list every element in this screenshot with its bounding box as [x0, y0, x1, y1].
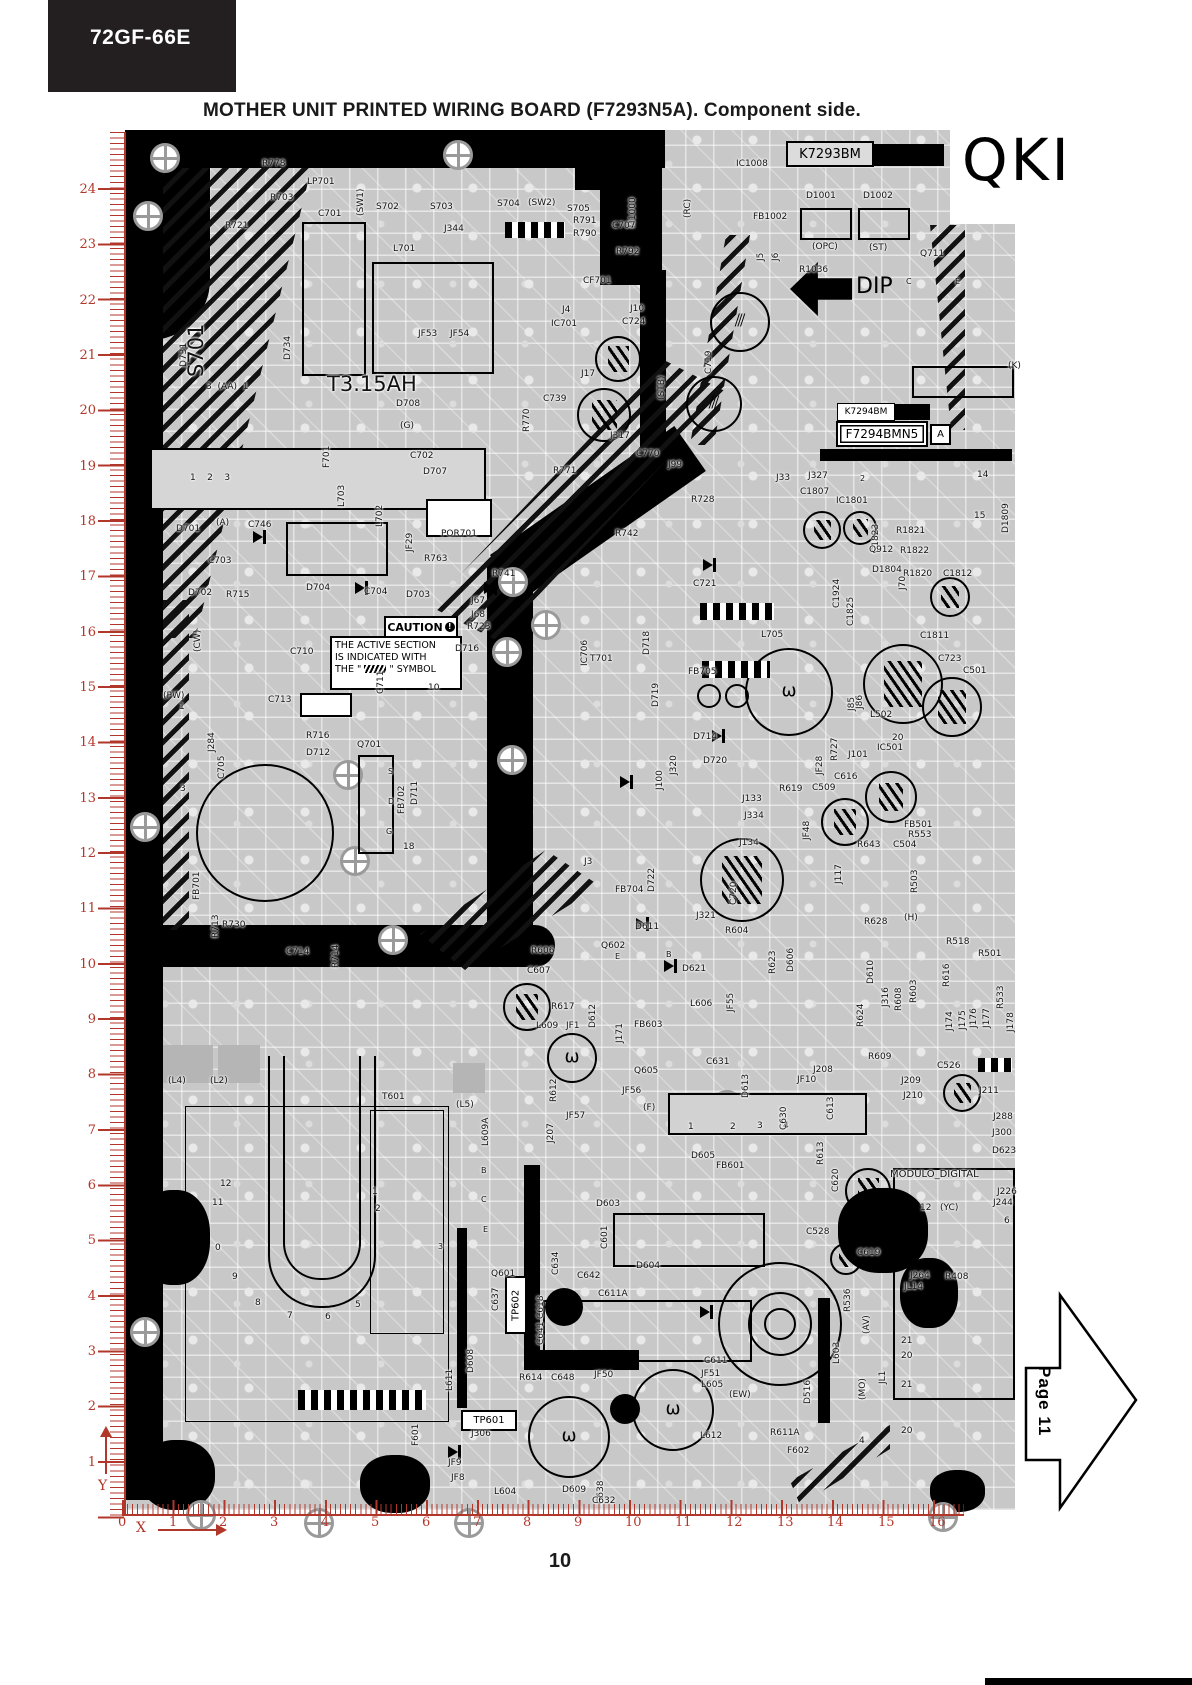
component-label: 2 — [730, 1123, 736, 1132]
component-label: R619 — [779, 785, 802, 794]
component-label: (H) — [904, 914, 918, 923]
component-label: 8 — [255, 1299, 261, 1308]
component-label: R713 — [212, 915, 221, 938]
component-label: FB704 — [615, 886, 644, 895]
component-label: 20 — [901, 1352, 912, 1361]
component-label: S703 — [430, 203, 453, 212]
component-label: J334 — [744, 812, 764, 821]
caution-title: CAUTION — [387, 621, 442, 634]
component-label: D702 — [188, 589, 212, 598]
component-label: R723 — [467, 623, 490, 632]
component-label: FB701 — [193, 871, 202, 900]
ruler-number: 16 — [76, 626, 96, 639]
component-label: FB702 — [398, 785, 407, 814]
capacitor-symbol — [865, 771, 917, 823]
component-label: IC1801 — [836, 497, 868, 506]
ruler-number: 15 — [878, 1516, 895, 1529]
component-label: D704 — [306, 584, 330, 593]
pad-symbol — [697, 684, 721, 708]
black-trace — [892, 404, 930, 420]
component-label: JF55 — [727, 993, 736, 1012]
component-label: S702 — [376, 203, 399, 212]
component-label: JF50 — [594, 1371, 613, 1380]
mounting-hole — [133, 201, 163, 231]
component-label: 14 — [977, 471, 988, 480]
component-label: J226 — [997, 1188, 1017, 1197]
component-label: 3 — [757, 1122, 763, 1131]
smd-pads — [700, 603, 774, 620]
component-label: D722 — [648, 868, 657, 892]
component-label: J10 — [630, 305, 644, 314]
component-label: C601 — [601, 1226, 610, 1249]
component-label: R703 — [270, 194, 293, 203]
diode-symbol — [700, 1306, 710, 1318]
component-label: F602 — [787, 1447, 809, 1456]
component-label: S705 — [567, 205, 590, 214]
component-label: L609 — [536, 1022, 558, 1031]
component-label: 20 — [901, 1427, 912, 1436]
component-label: (CW) — [194, 630, 203, 652]
component-label: J306 — [471, 1430, 491, 1439]
component-label: C641 — [537, 1322, 546, 1345]
component-label: C642 — [577, 1272, 600, 1281]
component-label: 1 — [179, 703, 185, 712]
component-label: 6 — [1004, 1217, 1010, 1226]
ruler-number: 11 — [675, 1516, 692, 1529]
ruler-number: 15 — [76, 681, 96, 694]
component-label: D708 — [396, 400, 420, 409]
component-label: L703 — [338, 485, 347, 507]
component-label: D609 — [562, 1486, 586, 1495]
page-number: 10 — [530, 1550, 590, 1573]
diode-symbol — [664, 960, 674, 972]
ruler-number: 6 — [76, 1179, 96, 1192]
component-label: (F) — [643, 1104, 655, 1113]
component-label: JF8 — [451, 1474, 465, 1483]
ruler-number: 5 — [371, 1516, 379, 1529]
ruler-number: 12 — [76, 847, 96, 860]
component-label: J5 — [757, 253, 766, 261]
component-label: L611 — [446, 1369, 455, 1391]
component-label: D621 — [682, 965, 706, 974]
ruler-number: 9 — [76, 1013, 96, 1026]
component-label: C509 — [812, 784, 835, 793]
capacitor-symbol — [700, 838, 784, 922]
component-label: Q912 — [869, 546, 893, 555]
component-label: D1804 — [872, 566, 902, 575]
exclamation-icon: ! — [445, 622, 455, 632]
component-label: Q605 — [634, 1067, 658, 1076]
capacitor-symbol — [943, 1074, 981, 1112]
board-code-box: K7293BM — [786, 141, 874, 167]
component-label: C616 — [834, 773, 857, 782]
component-label: (L2) — [210, 1077, 228, 1086]
component-label: D719 — [652, 683, 661, 707]
board-code: K7293BM — [799, 147, 861, 162]
component-label: R714 — [332, 945, 341, 968]
component-label: C1924 — [833, 579, 842, 608]
diode-symbol — [484, 582, 494, 594]
mounting-hole — [130, 812, 160, 842]
component-outline — [196, 764, 334, 902]
component-label: R611A — [770, 1429, 800, 1438]
component-label: J210 — [903, 1092, 923, 1101]
component-label: (L5) — [456, 1101, 474, 1110]
tuner-outline — [764, 1308, 796, 1340]
component-label: J6 — [772, 253, 781, 261]
component-label: J207 — [547, 1123, 556, 1143]
component-label: R624 — [857, 1004, 866, 1027]
component-label: C631 — [706, 1058, 729, 1067]
component-label: R742 — [615, 530, 638, 539]
component-label: 1 — [372, 1188, 378, 1197]
component-label: 1 — [688, 1123, 694, 1132]
component-label: R604 — [725, 927, 748, 936]
component-label: (SW1) — [357, 189, 366, 216]
component-label: C703 — [208, 557, 231, 566]
component-label: R609 — [868, 1053, 891, 1062]
component-label: 12 (YC) — [920, 1204, 958, 1213]
component-label: D731 — [180, 343, 189, 367]
ruler-number: 6 — [422, 1516, 430, 1529]
component-label: J208 — [813, 1066, 833, 1075]
component-label: C501 — [963, 667, 986, 676]
component-label: C528 — [806, 1228, 829, 1237]
component-label: T701 — [590, 655, 613, 664]
component-label: J211 — [979, 1087, 999, 1096]
ruler-number: 1 — [169, 1516, 177, 1529]
component-outline — [858, 208, 910, 240]
component-label: J244 — [993, 1199, 1013, 1208]
component-label: C526 — [937, 1062, 960, 1071]
component-outline — [613, 1213, 765, 1267]
component-label: D703 — [406, 591, 430, 600]
component-outline — [912, 366, 1014, 398]
component-label: D714 — [693, 733, 717, 742]
component-label: C611 — [704, 1357, 727, 1366]
component-label: IC706 — [581, 640, 590, 666]
component-label: R715 — [226, 591, 249, 600]
smd-pads — [505, 222, 565, 238]
ruler-number: 17 — [76, 570, 96, 583]
component-label: R643 — [857, 841, 880, 850]
x-axis-arrow — [158, 1529, 216, 1531]
mounting-hole — [378, 925, 408, 955]
component-label: D1002 — [863, 192, 893, 201]
component-label: J320 — [670, 755, 679, 775]
component-label: J134 — [739, 839, 759, 848]
mounting-hole — [497, 745, 527, 775]
model-number: 72GF-66E — [90, 26, 191, 50]
ruler-number: 4 — [76, 1290, 96, 1303]
component-label: C701 — [318, 210, 341, 219]
component-label: JF51 — [701, 1370, 720, 1379]
component-label: JF28 — [816, 756, 825, 775]
ruler-number: 10 — [625, 1516, 642, 1529]
smd-pads — [298, 1390, 426, 1410]
component-label: J117 — [835, 864, 844, 884]
ruler-number: 11 — [76, 902, 96, 915]
component-label: 21 — [901, 1337, 912, 1346]
component-label: C724 — [622, 318, 645, 327]
component-label: J316 — [882, 987, 891, 1007]
component-label: Q602 — [601, 942, 625, 951]
component-label: T601 — [382, 1093, 405, 1102]
component-label: 20 — [892, 734, 903, 743]
y-axis-arrowhead-icon — [100, 1426, 112, 1437]
diode-symbol — [620, 776, 630, 788]
component-label: R770 — [523, 409, 532, 432]
ruler-number: 24 — [76, 183, 96, 196]
diode-symbol — [448, 1446, 458, 1458]
capacitor-symbol — [821, 798, 869, 846]
component-label: R614 — [519, 1374, 542, 1383]
component-label: JF29 — [406, 533, 415, 552]
component-label: C620 — [832, 1169, 841, 1192]
component-label: 11 — [212, 1199, 223, 1208]
ruler-number: 19 — [76, 460, 96, 473]
component-label: J70 — [899, 576, 908, 590]
component-label: JF1 — [566, 1022, 580, 1031]
component-label: C — [906, 278, 912, 286]
component-label: L705 — [761, 631, 783, 640]
component-label: S701 — [186, 324, 207, 377]
component-label: D718 — [643, 631, 652, 655]
component-label: D610 — [867, 960, 876, 984]
component-label: R501 — [978, 950, 1001, 959]
component-label: D605 — [691, 1152, 715, 1161]
component-label: J264 — [910, 1272, 930, 1281]
component-label: C611A — [598, 1290, 628, 1299]
ruler-number: 8 — [76, 1068, 96, 1081]
component-label: B — [481, 1167, 487, 1175]
testpoint-label: TP602 — [511, 1289, 522, 1320]
ruler-number: 3 — [76, 1345, 96, 1358]
component-label: E — [483, 1226, 488, 1234]
component-label: 4 — [859, 1437, 865, 1446]
component-label: C721 — [693, 580, 716, 589]
testpoint-box: TP602 — [505, 1276, 527, 1334]
capacitor-symbol — [595, 336, 641, 382]
ruler-number: 14 — [827, 1516, 844, 1529]
black-trace — [457, 1228, 467, 1408]
ruler-number: 5 — [76, 1234, 96, 1247]
component-label: C746 — [248, 521, 271, 530]
ruler-number: 7 — [76, 1124, 96, 1137]
component-label: C1807 — [800, 488, 829, 497]
component-label: (STB) — [658, 375, 667, 399]
component-label: D734 — [284, 336, 293, 360]
component-outline — [302, 222, 366, 376]
component-label: J171 — [616, 1023, 625, 1043]
component-label: F601 — [412, 1424, 421, 1446]
component-label: D608 — [467, 1349, 476, 1373]
component-label: D606 — [787, 948, 796, 972]
ruler-number: 2 — [76, 1400, 96, 1413]
component-label: C634 — [552, 1252, 561, 1275]
component-label: (ST) — [869, 244, 887, 253]
caution-line: IS INDICATED WITH — [335, 652, 427, 663]
component-label: R763 — [424, 555, 447, 564]
component-label: L502 — [870, 711, 892, 720]
diode-symbol — [703, 559, 713, 571]
component-label: (AV) — [863, 1316, 872, 1335]
component-label: R617 — [551, 1003, 574, 1012]
ruler-left-line — [124, 132, 126, 1516]
ruler-number: 12 — [726, 1516, 743, 1529]
component-label: (K) — [1008, 362, 1021, 371]
component-label: R728 — [691, 496, 714, 505]
component-label: J99 — [668, 461, 682, 470]
component-label: D716 — [455, 645, 479, 654]
component-label: R616 — [943, 964, 952, 987]
component-label: D707 — [423, 468, 447, 477]
ruler-number: 9 — [574, 1516, 582, 1529]
component-label: L702 — [376, 505, 385, 527]
component-label: (OPC) — [812, 243, 838, 252]
component-label: R1036 — [799, 266, 828, 275]
component-label: Q701 — [357, 741, 381, 750]
component-label: J317 — [610, 432, 630, 441]
component-label: C1812 — [943, 570, 972, 579]
component-label: JF48 — [803, 821, 812, 840]
component-label: 3 (AA) 1 — [206, 383, 248, 392]
component-label: D623 — [992, 1147, 1016, 1156]
ruler-number: 1 — [76, 1456, 96, 1469]
component-label: J175 — [959, 1010, 968, 1030]
ruler-number: 0 — [118, 1516, 126, 1529]
component-label: D613 — [742, 1074, 751, 1098]
component-label: R613 — [817, 1142, 826, 1165]
pad-symbol — [725, 684, 749, 708]
component-label: J174 — [946, 1011, 955, 1031]
component-label: 9 — [232, 1273, 238, 1282]
component-label: R612 — [550, 1079, 559, 1102]
component-label: R623 — [769, 951, 778, 974]
board-code-box: K7294BM — [837, 403, 895, 421]
component-label: (L4) — [168, 1077, 186, 1086]
component-label: 6 — [325, 1313, 331, 1322]
black-trace — [820, 449, 1012, 461]
ruler-number: 8 — [523, 1516, 531, 1529]
inductor-symbol — [547, 1033, 597, 1083]
component-label: J67 — [471, 597, 485, 606]
component-label: L612 — [700, 1432, 722, 1441]
component-label: C619 — [857, 1249, 880, 1258]
caution-text: THE ACTIVE SECTION IS INDICATED WITH THE… — [330, 636, 462, 690]
component-label: J68 — [471, 611, 485, 620]
component-label: 15 — [974, 512, 985, 521]
ruler-number: 4 — [321, 1516, 329, 1529]
component-label: (RC) — [684, 199, 693, 218]
component-label: E — [615, 953, 620, 961]
component-label: R518 — [946, 938, 969, 947]
component-outline — [372, 262, 494, 374]
component-label: 2 — [860, 475, 865, 483]
component-label: (PW) — [163, 692, 184, 701]
component-label: E — [955, 278, 960, 286]
x-axis-label: X — [136, 1520, 146, 1536]
component-label: T3.15AH — [327, 374, 417, 395]
capacitor-symbol — [922, 677, 982, 737]
component-label: C704 — [364, 588, 387, 597]
component-label: R1822 — [900, 547, 929, 556]
inductor-symbol — [528, 1396, 610, 1478]
component-label: D711 — [411, 781, 420, 805]
mounting-hole — [443, 140, 473, 170]
component-label: JF56 — [622, 1087, 641, 1096]
component-label: 7 — [287, 1312, 293, 1321]
component-label: L609A — [482, 1118, 491, 1146]
component-label: 0 — [215, 1244, 221, 1253]
ruler-number: 16 — [929, 1516, 946, 1529]
pad — [453, 1063, 485, 1093]
component-label: G — [386, 828, 392, 836]
dip-label: DIP — [856, 274, 893, 299]
component-label: R741 — [492, 570, 515, 579]
component-label: R553 — [908, 831, 931, 840]
component-label: LP701 — [307, 178, 335, 187]
component-label: 2 — [375, 1205, 381, 1214]
y-axis-arrow — [105, 1436, 107, 1474]
component-label: C702 — [410, 452, 433, 461]
page-title: MOTHER UNIT PRINTED WIRING BOARD (F7293N… — [203, 100, 861, 122]
component-label: Q601 — [491, 1270, 515, 1279]
black-trace — [868, 144, 944, 166]
component-label: D1001 — [806, 192, 836, 201]
ruler-number: 23 — [76, 238, 96, 251]
capacitor-symbol — [845, 1168, 891, 1214]
mounting-hole — [130, 1317, 160, 1347]
component-label: C723 — [938, 655, 961, 664]
transformer-core — [283, 1056, 361, 1280]
component-label: J177 — [983, 1008, 992, 1028]
mounting-hole — [492, 637, 522, 667]
component-label: R608 — [895, 988, 904, 1011]
component-label: R536 — [844, 1289, 853, 1312]
component-label: J300 — [992, 1129, 1012, 1138]
ruler-number: 13 — [76, 792, 96, 805]
component-label: C770 — [636, 450, 659, 459]
component-label: L606 — [690, 1000, 712, 1009]
component-label: JF10 — [797, 1076, 816, 1085]
capacitor-symbol — [930, 577, 970, 617]
component-label: R790 — [573, 230, 596, 239]
component-label: FB601 — [716, 1162, 745, 1171]
component-label: Q711 — [920, 250, 944, 259]
component-label: CF701 — [583, 277, 612, 286]
component-label: J176 — [970, 1008, 979, 1028]
component-label: D720 — [703, 757, 727, 766]
component-label: J178 — [1007, 1012, 1016, 1032]
component-label: FB603 — [634, 1021, 663, 1030]
ruler-bottom-major-ticks — [122, 1500, 967, 1514]
component-label: IC701 — [551, 320, 577, 329]
component-label: C739 — [543, 395, 566, 404]
y-axis-label: Y — [98, 1478, 107, 1494]
component-label: C637 — [492, 1288, 501, 1311]
component-label: C711 — [377, 671, 386, 694]
next-page-label: Page 11 — [1034, 1366, 1054, 1436]
component-label: J133 — [742, 795, 762, 804]
component-label: R792 — [616, 248, 639, 257]
component-label: JF54 — [450, 330, 469, 339]
component-label: D1809 — [1002, 503, 1011, 533]
component-label: C607 — [527, 967, 550, 976]
component-label: R721 — [225, 222, 248, 231]
component-label: JL1 — [879, 1370, 888, 1383]
smd-pads — [978, 1058, 1012, 1072]
